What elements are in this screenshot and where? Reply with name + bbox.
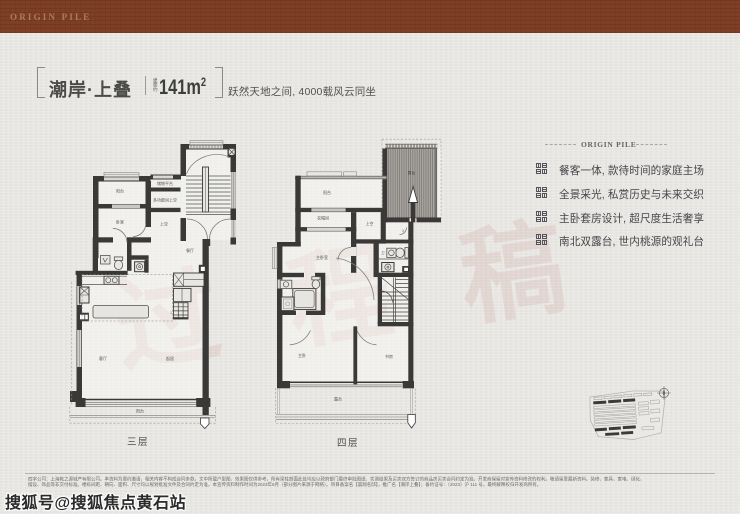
svg-text:阳台: 阳台	[136, 408, 144, 414]
svg-text:阳台: 阳台	[116, 188, 124, 194]
svg-text:主卧: 主卧	[298, 352, 306, 358]
svg-text:露台: 露台	[334, 396, 342, 402]
svg-text:露台: 露台	[408, 170, 416, 175]
svg-text:卧室: 卧室	[116, 219, 124, 225]
svg-text:起居: 起居	[166, 355, 174, 361]
svg-text:餐厅: 餐厅	[186, 247, 194, 253]
svg-text:3: 3	[402, 229, 404, 233]
svg-text:1: 1	[170, 311, 172, 315]
svg-text:客厅: 客厅	[99, 355, 107, 361]
svg-text:书房: 书房	[385, 353, 393, 359]
svg-text:上空: 上空	[366, 220, 374, 226]
svg-text:衣帽间: 衣帽间	[317, 215, 329, 221]
svg-text:多功能间上空: 多功能间上空	[153, 197, 177, 203]
svg-text:主卧室: 主卧室	[316, 254, 328, 260]
svg-text:储物平台: 储物平台	[157, 180, 173, 186]
svg-text:上空: 上空	[160, 221, 168, 227]
svg-text:阳台: 阳台	[323, 189, 331, 195]
